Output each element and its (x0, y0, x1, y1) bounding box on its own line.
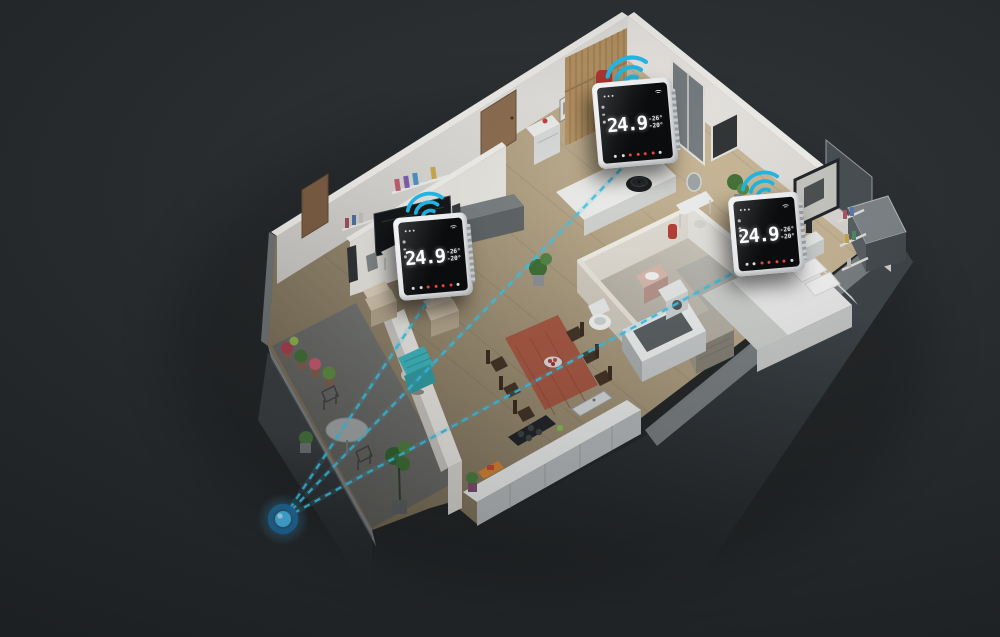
touch-key-dot (629, 153, 632, 156)
touch-key-dot (636, 153, 639, 156)
sub-reading-bottom: -20° (649, 121, 664, 129)
touch-key-dot (745, 263, 748, 266)
touch-key-dot (449, 283, 452, 286)
sub-reading-bottom: -20° (447, 255, 462, 263)
touch-key-dot (782, 259, 785, 262)
touch-key-dot (614, 155, 617, 158)
touch-key-dot (775, 260, 778, 263)
main-temperature: 24.9 (606, 112, 648, 137)
stool (694, 220, 706, 228)
touch-key-dot (427, 285, 430, 288)
touch-key-dot (456, 283, 459, 286)
red-vase (543, 119, 548, 124)
thermostat-body: 24.9 -26° -20° (591, 77, 678, 170)
touch-key-dot (412, 287, 415, 290)
wifi-status-icon (781, 202, 788, 209)
sub-reading-bottom: -20° (780, 232, 795, 240)
hub-core (275, 511, 291, 527)
bottle (557, 425, 563, 431)
thermostat-body: 24.9 -26° -20° (393, 212, 474, 301)
thermostat-screen: 24.9 -26° -20° (398, 217, 468, 295)
thermostat-screen: 24.9 -26° -20° (597, 82, 673, 164)
touch-key-dot (419, 286, 422, 289)
gateway-hub (257, 493, 309, 545)
thermostat-body: 24.9 -26° -20° (728, 191, 806, 277)
sub-reading-top: -26° (648, 114, 663, 122)
thermostat-status-row (398, 217, 463, 237)
main-temperature: 24.9 (738, 223, 780, 248)
small-plant (299, 431, 313, 453)
round-speaker (626, 176, 652, 192)
mirror (687, 173, 701, 191)
touch-key-dot (441, 284, 444, 287)
thermostat-touch-keys (602, 145, 673, 164)
touch-key-dot (752, 262, 755, 265)
touch-key-dot (651, 151, 654, 154)
temperature-readout: 24.9 -26° -20° (734, 210, 799, 258)
mode-icons-column (402, 240, 406, 258)
status-dots-icon (740, 208, 750, 211)
touch-key-dot (767, 261, 770, 264)
touch-key-dot (760, 261, 763, 264)
mode-icons-column (738, 219, 742, 237)
touch-key-dot (790, 259, 793, 262)
thermostat-screen: 24.9 -26° -20° (733, 196, 800, 271)
thermostat-status-row (597, 82, 668, 102)
main-temperature: 24.9 (404, 245, 446, 270)
thermostat-touch-keys (403, 277, 468, 296)
touch-key-dot (644, 152, 647, 155)
sub-reading-top: -26° (446, 248, 461, 256)
thermostat-device-3: 24.9 -26° -20° (393, 212, 474, 301)
thermostat-touch-keys (738, 253, 800, 271)
temperature-readout: 24.9 -26° -20° (399, 231, 467, 282)
wifi-status-icon (654, 88, 661, 95)
mode-icons-column (601, 106, 605, 124)
thermostat-device-2: 24.9 -26° -20° (728, 191, 806, 277)
smart-thermostat-marketing-visual: 24.9 -26° -20° 24.9 (0, 0, 1000, 637)
status-dots-icon (603, 94, 613, 97)
thermostat-status-row (733, 196, 795, 215)
status-dots-icon (405, 229, 415, 232)
sub-reading-top: -26° (780, 225, 795, 233)
touch-key-dot (659, 151, 662, 154)
touch-key-dot (434, 285, 437, 288)
wifi-status-icon (449, 223, 456, 230)
temperature-readout: 24.9 -26° -20° (598, 96, 672, 151)
thermostat-device-1: 24.9 -26° -20° (591, 77, 678, 170)
touch-key-dot (621, 154, 624, 157)
red-pot (668, 224, 677, 239)
apartment-3d-model (0, 0, 1000, 637)
